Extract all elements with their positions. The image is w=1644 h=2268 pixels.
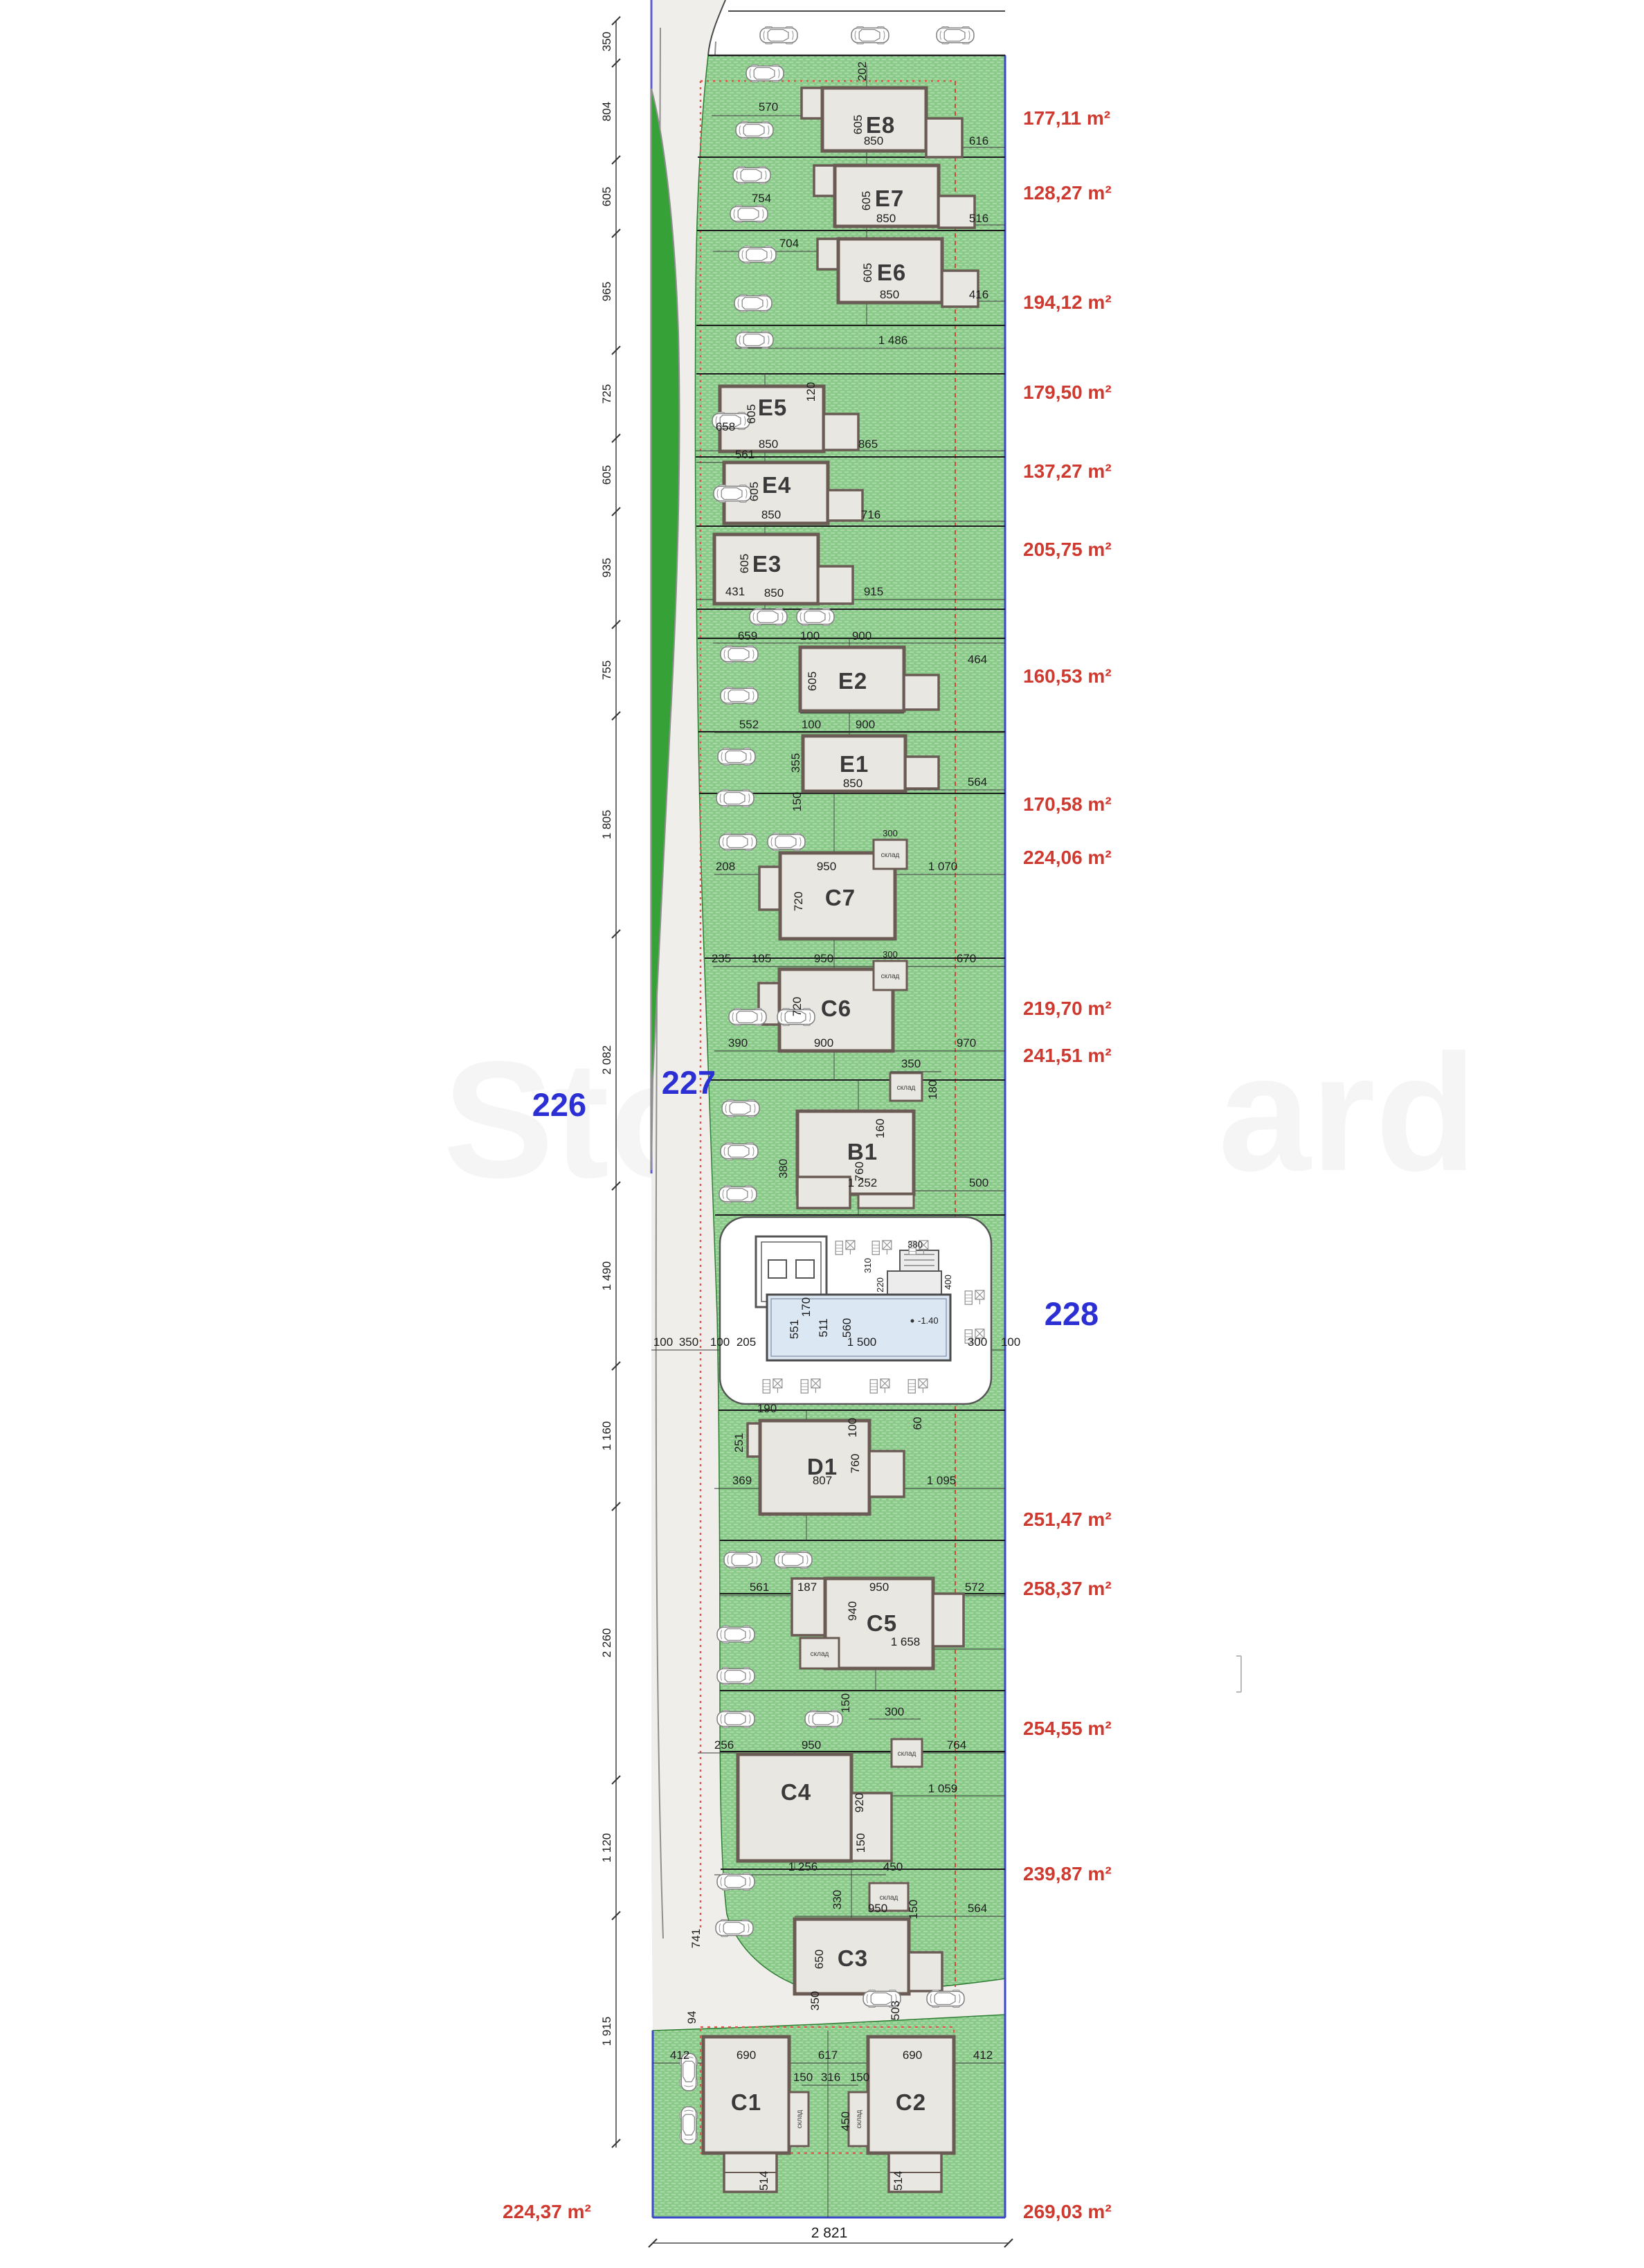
area-label: 269,03 m²: [1023, 2201, 1112, 2222]
shed-label: склад: [811, 1650, 829, 1658]
dim-text: 100: [800, 629, 820, 642]
building-label: E5: [758, 395, 787, 420]
dim-text: 100: [653, 1335, 673, 1349]
dim-text: 464: [968, 653, 987, 666]
building-label: C6: [821, 996, 851, 1021]
dim-text: 850: [761, 508, 781, 521]
dim-text: 605: [748, 482, 761, 501]
dim-text: 150: [907, 1900, 920, 1919]
dim-text: 450: [883, 1860, 903, 1873]
car-icon: [722, 1099, 759, 1117]
dim-text: 950: [868, 1902, 887, 1915]
dim-text: 150: [793, 2071, 813, 2084]
dim-text: 551: [788, 1320, 801, 1339]
dim-text: 450: [839, 2112, 852, 2131]
dim-text: 1 658: [891, 1635, 921, 1648]
dim-text: 180: [926, 1080, 939, 1099]
building-b1: B1: [797, 1111, 914, 1208]
dim-text: 1 059: [928, 1782, 958, 1795]
dim-text: 950: [817, 860, 836, 873]
dim-text: 564: [968, 775, 987, 789]
dim-text: 950: [869, 1581, 889, 1594]
dim-text: 412: [670, 2049, 689, 2062]
chain-dim: 1 805: [600, 810, 613, 840]
dim-text: 300: [968, 1335, 987, 1349]
shed-label: склад: [881, 973, 900, 980]
dim-text: 300: [885, 1705, 904, 1718]
area-label: 258,37 m²: [1023, 1578, 1112, 1599]
shed-c5: склад: [800, 1638, 839, 1668]
dim-text: 256: [714, 1738, 734, 1752]
area-label: 128,27 m²: [1023, 182, 1112, 204]
pool-depth-label: -1.40: [918, 1315, 939, 1326]
bottom-dimension: 2 821: [649, 2225, 1013, 2247]
car-icon: [739, 246, 776, 263]
building-label: E3: [752, 551, 782, 577]
dim-text: 605: [860, 191, 873, 210]
total-width-dim: 2 821: [811, 2225, 848, 2241]
car-icon: [719, 833, 757, 850]
dim-text: 605: [806, 672, 819, 691]
car-icon: [721, 687, 758, 704]
dim-text: 60: [911, 1417, 924, 1430]
dim-text: 850: [764, 586, 784, 600]
car-icon: [746, 64, 784, 82]
dim-text: 970: [957, 1036, 976, 1050]
dim-text: 850: [759, 438, 778, 451]
building-label: C5: [867, 1610, 897, 1636]
car-icon: [719, 1185, 757, 1203]
dim-text: 940: [846, 1601, 859, 1621]
dim-text: 920: [853, 1793, 866, 1812]
dim-text: 690: [903, 2049, 922, 2062]
car-icon: [937, 26, 974, 44]
dim-text: 741: [689, 1929, 703, 1948]
car-icon: [734, 294, 772, 312]
dim-text: 235: [712, 952, 731, 965]
building-label: C7: [825, 885, 856, 910]
dim-text: 503: [889, 2001, 902, 2020]
dim-text: 658: [716, 420, 735, 433]
dim-text: 170: [800, 1297, 813, 1317]
dim-text: 572: [965, 1581, 984, 1594]
dim-text: 720: [792, 892, 805, 911]
chain-dim: 725: [600, 384, 613, 404]
building-label: C3: [838, 1945, 868, 1971]
car-icon: [680, 2107, 697, 2144]
watermark-right: ard: [1218, 1020, 1476, 1205]
dim-text: 754: [752, 192, 771, 205]
car-icon: [718, 748, 755, 765]
dim-text: 514: [892, 2171, 905, 2190]
site-plan-drawing: Sto ard: [0, 0, 1644, 2268]
car-icon: [760, 26, 797, 44]
area-label: 251,47 m²: [1023, 1509, 1112, 1530]
chain-dim: 2 260: [600, 1628, 613, 1658]
chain-dim: 935: [600, 558, 613, 577]
dim-text: 350: [901, 1057, 921, 1070]
dim-text: 190: [757, 1402, 777, 1415]
building-label: E6: [877, 260, 906, 285]
dim-text: 202: [856, 62, 869, 81]
dim-text: 850: [876, 212, 896, 225]
building-label: E2: [838, 668, 867, 694]
car-icon: [797, 608, 834, 625]
shed-label: склад: [898, 1750, 916, 1758]
dim-text: 150: [839, 1693, 852, 1713]
shed-c7: склад: [874, 840, 907, 869]
dim-text: 369: [732, 1474, 752, 1487]
chain-dim: 804: [600, 102, 613, 121]
chain-dim: 1 120: [600, 1833, 613, 1863]
area-label: 177,11 m²: [1023, 107, 1110, 129]
dim-text: 150: [854, 1833, 867, 1853]
area-label: 205,75 m²: [1023, 539, 1112, 560]
area-label: 194,12 m²: [1023, 291, 1112, 313]
dim-text: 100: [802, 718, 821, 731]
building-label: C4: [781, 1779, 811, 1805]
area-label: 254,55 m²: [1023, 1718, 1112, 1739]
dim-text: 690: [737, 2049, 756, 2062]
parcel-number-228: 228: [1045, 1295, 1099, 1332]
dim-text: 416: [969, 288, 988, 301]
dim-text: 514: [757, 2171, 770, 2190]
car-icon: [717, 1710, 755, 1727]
top-street: [728, 11, 1005, 44]
dim-text: 412: [973, 2049, 993, 2062]
car-icon: [724, 1551, 761, 1568]
dim-text: 704: [779, 237, 799, 250]
shed-label: склад: [796, 2109, 804, 2128]
dim-text: 150: [850, 2071, 869, 2084]
dim-text: 900: [856, 718, 875, 731]
dim-text: 516: [969, 212, 988, 225]
car-icon: [768, 833, 805, 850]
shed-label: склад: [897, 1084, 916, 1092]
car-icon: [736, 331, 773, 348]
artifact-mark: [1236, 1656, 1241, 1692]
dim-text: 350: [809, 1991, 822, 2010]
dim-text: 1 070: [928, 860, 958, 873]
building-label: E1: [840, 751, 869, 777]
car-icon: [750, 608, 787, 625]
chain-dim: 965: [600, 282, 613, 301]
shed-c6: склад: [874, 961, 907, 990]
car-icon: [721, 645, 758, 663]
area-label: 224,37 m²: [503, 2201, 591, 2222]
dim-text: 560: [840, 1318, 853, 1338]
chain-dim: 350: [600, 32, 613, 51]
building-label: B1: [847, 1139, 878, 1164]
dim-text: 160: [874, 1119, 887, 1138]
dim-text: 1 095: [927, 1474, 957, 1487]
dim-text: 561: [735, 448, 755, 461]
dim-text: 1 252: [848, 1176, 878, 1189]
dim-text: 390: [728, 1036, 748, 1050]
shed-label: склад: [856, 2109, 863, 2128]
car-icon: [775, 1551, 812, 1568]
dim-text: 380: [777, 1159, 790, 1178]
dim-text: 431: [725, 585, 745, 598]
dim-text: 764: [947, 1738, 966, 1752]
car-icon: [717, 1667, 755, 1684]
dim-text: 605: [738, 554, 751, 573]
car-icon: [730, 205, 768, 222]
building-label: E4: [762, 472, 791, 498]
dim-text: 900: [814, 1036, 833, 1050]
area-label: 160,53 m²: [1023, 665, 1112, 687]
dim-text: 850: [843, 777, 862, 790]
dim-text: 316: [821, 2071, 840, 2084]
dim-text: 716: [861, 508, 880, 521]
area-label: 179,50 m²: [1023, 381, 1112, 403]
dim-text: 380: [907, 1239, 923, 1250]
dim-text: 100: [710, 1335, 730, 1349]
dim-text: 570: [759, 100, 778, 114]
chain-dim: 1 160: [600, 1421, 613, 1451]
site-plan-canvas: Sto ard: [0, 0, 1644, 2268]
shed-label: склад: [881, 852, 900, 859]
area-label: 137,27 m²: [1023, 460, 1112, 482]
dim-text: 205: [737, 1335, 756, 1349]
building-label: E7: [875, 186, 904, 211]
building-label: C2: [896, 2089, 926, 2115]
dim-text: 605: [851, 115, 865, 134]
dim-text: 561: [750, 1581, 769, 1594]
dim-text: 120: [804, 382, 818, 402]
pool-depth-dot: [911, 1320, 914, 1323]
area-label: 241,51 m²: [1023, 1045, 1112, 1066]
dim-text: 605: [861, 263, 874, 282]
car-icon: [927, 1990, 964, 2007]
dim-text: 187: [797, 1581, 817, 1594]
dim-text: 865: [858, 438, 878, 451]
dim-text: 400: [943, 1275, 953, 1290]
building-label: C1: [731, 2089, 761, 2115]
car-icon: [736, 121, 773, 138]
dim-text: 850: [864, 134, 883, 147]
shed-c1: склад: [789, 2092, 809, 2146]
dim-text: 617: [818, 2049, 838, 2062]
dim-text: 355: [789, 753, 802, 773]
dim-text: 300: [883, 828, 898, 838]
area-label: 224,06 m²: [1023, 847, 1112, 868]
dim-text: 807: [813, 1474, 832, 1487]
dim-text: 350: [679, 1335, 698, 1349]
shed-c4: склад: [892, 1739, 922, 1767]
chain-dim: 605: [600, 187, 613, 206]
dim-text: 616: [969, 134, 988, 147]
area-label: 239,87 m²: [1023, 1863, 1112, 1884]
dim-text: 150: [791, 792, 804, 811]
car-icon: [717, 1626, 755, 1643]
car-icon: [721, 1142, 758, 1160]
dim-text: 1 256: [788, 1860, 818, 1873]
car-icon: [733, 166, 770, 183]
chain-dim: 1 915: [600, 2017, 613, 2046]
chain-dim: 1 490: [600, 1261, 613, 1291]
dim-text: 100: [846, 1418, 859, 1437]
dim-text: 511: [817, 1318, 830, 1337]
shed-b1: склад: [890, 1073, 922, 1101]
parcel-number-226: 226: [532, 1086, 586, 1123]
dim-text: 552: [739, 718, 759, 731]
dim-text: 310: [862, 1258, 873, 1273]
car-icon: [716, 789, 754, 807]
dim-text: 220: [875, 1277, 885, 1293]
car-icon: [729, 1008, 766, 1025]
dim-text: 251: [732, 1433, 746, 1452]
dim-text: 208: [716, 860, 735, 873]
dim-text: 760: [849, 1454, 862, 1473]
dim-text: 950: [802, 1738, 821, 1752]
dim-text: 670: [957, 952, 976, 965]
area-label: 170,58 m²: [1023, 793, 1112, 815]
dim-text: 950: [814, 952, 833, 965]
car-icon: [851, 26, 889, 44]
dim-text: 659: [738, 629, 757, 642]
chain-dim: 605: [600, 465, 613, 485]
car-icon: [805, 1710, 842, 1727]
chain-dim: 755: [600, 660, 613, 680]
parcel-number-227: 227: [662, 1064, 716, 1101]
dim-text: 500: [969, 1176, 988, 1189]
dim-text: 605: [745, 404, 758, 424]
dim-text: 330: [831, 1890, 844, 1909]
dim-text: 850: [880, 288, 899, 301]
dim-text: 1 486: [878, 334, 908, 347]
car-icon: [717, 1873, 755, 1890]
dim-text: 300: [883, 949, 898, 960]
dim-text: 100: [1001, 1335, 1020, 1349]
dim-text: 94: [685, 2011, 698, 2024]
dim-text: 105: [752, 952, 771, 965]
area-label: 219,70 m²: [1023, 998, 1112, 1019]
chain-dim: 2 082: [600, 1045, 613, 1075]
dim-text: 564: [968, 1902, 987, 1915]
car-icon: [714, 485, 751, 502]
dim-text: 900: [852, 629, 871, 642]
dim-text: 650: [813, 1950, 826, 1969]
dim-text: 720: [791, 997, 804, 1016]
car-icon: [716, 1919, 753, 1936]
shed-label: склад: [880, 1894, 898, 1902]
dim-text: 915: [864, 585, 883, 598]
